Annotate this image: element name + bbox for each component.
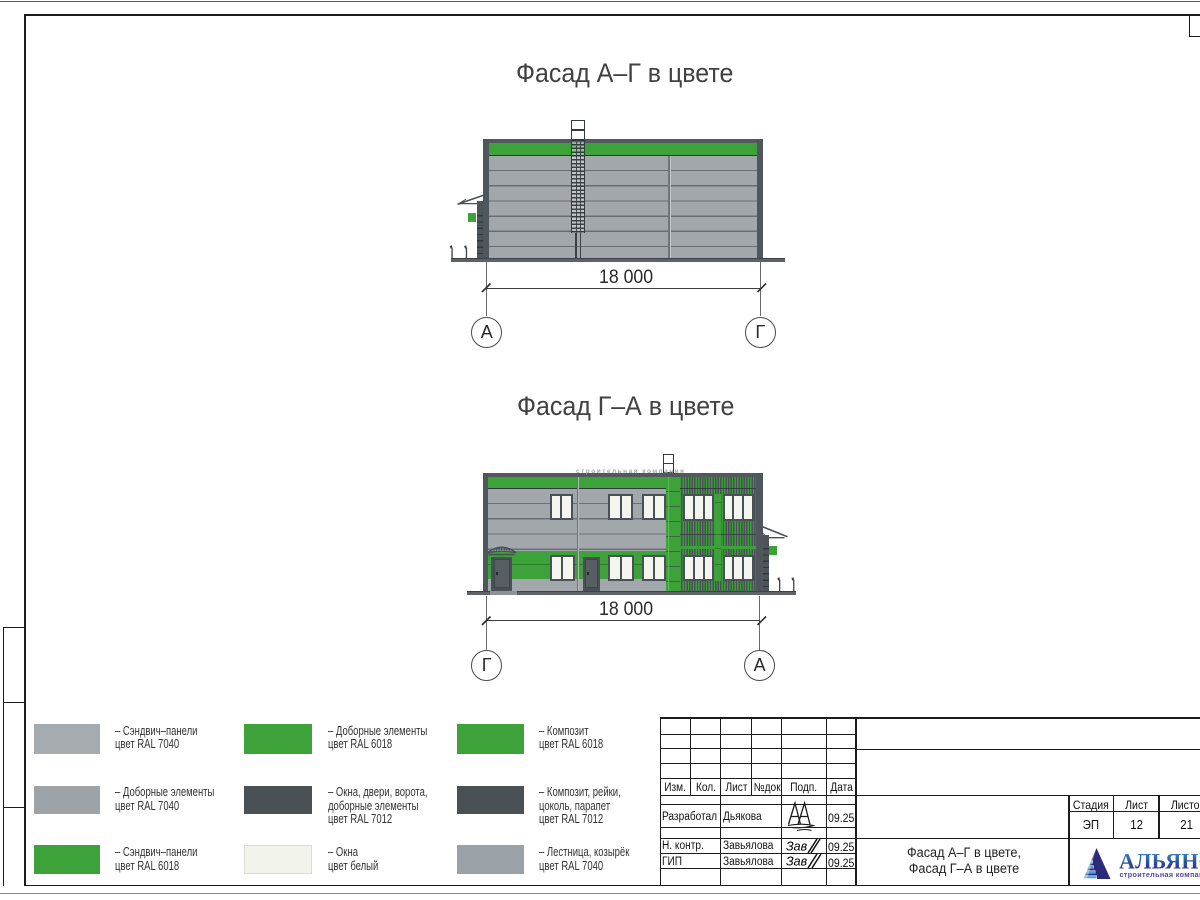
svg-text:Зав: Зав [786,840,808,854]
svg-text:строительная компания: строительная компания [1120,870,1200,879]
svg-text:Зав: Зав [786,855,808,869]
